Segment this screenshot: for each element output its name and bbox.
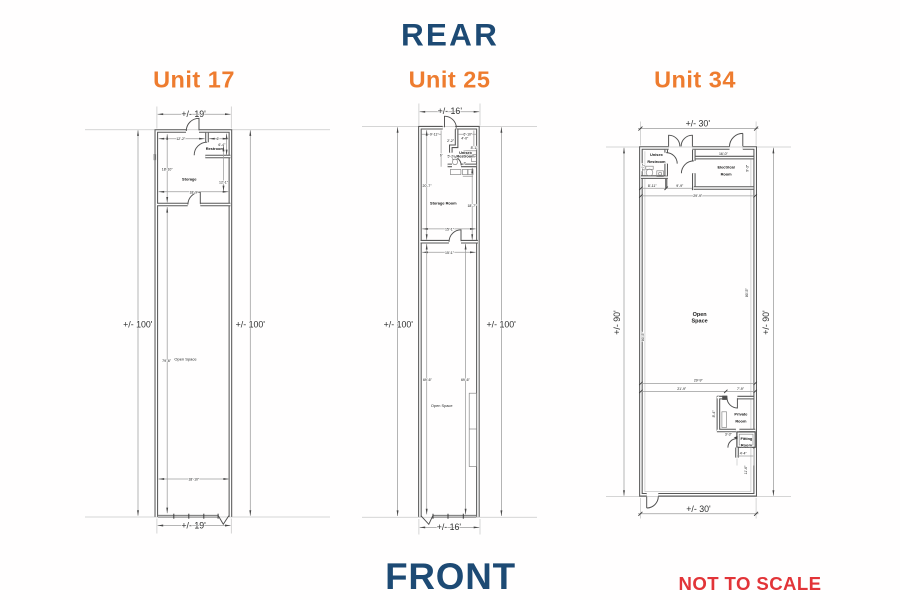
svg-text:Storage Room: Storage Room — [430, 201, 457, 206]
svg-text:Room: Room — [721, 171, 733, 176]
svg-text:5'-1": 5'-1" — [641, 163, 645, 171]
svg-text:+/- 30': +/- 30' — [686, 504, 711, 514]
svg-text:11'-6": 11'-6" — [744, 465, 748, 474]
svg-text:5'-2": 5'-2" — [448, 154, 456, 158]
svg-text:69'-6": 69'-6" — [461, 378, 471, 382]
svg-text:3'-3": 3'-3" — [725, 432, 733, 436]
svg-text:Private: Private — [734, 412, 748, 417]
svg-text:Open Space: Open Space — [174, 357, 197, 362]
svg-text:Electrical: Electrical — [717, 165, 734, 170]
svg-text:+/- 30': +/- 30' — [686, 119, 711, 129]
svg-text:Restroom: Restroom — [647, 159, 666, 164]
svg-text:+/- 100': +/- 100' — [236, 319, 266, 329]
svg-text:+/- 100': +/- 100' — [123, 319, 153, 329]
svg-text:+/- 90': +/- 90' — [612, 310, 622, 335]
svg-text:Unisex: Unisex — [650, 152, 664, 157]
svg-text:REAR: REAR — [401, 17, 499, 53]
svg-text:Space: Space — [691, 318, 707, 324]
svg-text:4'-4": 4'-4" — [740, 452, 748, 456]
svg-text:Restroom: Restroom — [206, 146, 225, 151]
svg-text:20'-7": 20'-7" — [423, 184, 433, 188]
svg-text:Open: Open — [693, 312, 708, 318]
svg-text:69'-6": 69'-6" — [423, 378, 433, 382]
svg-text:+/- 19': +/- 19' — [181, 520, 206, 530]
svg-text:9'-11": 9'-11" — [430, 133, 439, 137]
svg-text:FRONT: FRONT — [385, 556, 516, 597]
svg-text:+/- 16': +/- 16' — [438, 106, 463, 116]
svg-text:Restroom: Restroom — [456, 154, 475, 159]
svg-text:79'-6": 79'-6" — [162, 359, 172, 363]
svg-text:9'-9": 9'-9" — [676, 184, 684, 188]
svg-text:7': 7' — [463, 162, 466, 166]
svg-text:21'-9": 21'-9" — [677, 387, 687, 391]
svg-text:15'-1": 15'-1" — [445, 227, 455, 231]
svg-text:12'-1": 12'-1" — [219, 180, 229, 184]
svg-text:18'-7": 18'-7" — [467, 204, 477, 208]
svg-text:NOT TO SCALE: NOT TO SCALE — [679, 573, 822, 594]
svg-text:8'-4": 8'-4" — [712, 410, 716, 418]
svg-text:Unit 17: Unit 17 — [153, 67, 235, 93]
svg-text:16'-0": 16'-0" — [719, 152, 729, 156]
svg-text:Storage: Storage — [182, 176, 197, 181]
svg-text:2'-2": 2'-2" — [447, 139, 455, 143]
svg-text:6': 6' — [216, 137, 219, 141]
svg-text:+/- 90': +/- 90' — [761, 310, 771, 335]
svg-text:80'-5": 80'-5" — [641, 331, 645, 341]
svg-text:Unit 25: Unit 25 — [409, 67, 491, 93]
svg-text:+/- 100': +/- 100' — [384, 319, 414, 329]
svg-text:Unit 34: Unit 34 — [654, 67, 736, 93]
svg-text:18'-10": 18'-10" — [188, 478, 200, 482]
svg-text:12'-2": 12'-2" — [176, 137, 186, 141]
svg-text:Room: Room — [741, 443, 753, 448]
svg-text:15'-1": 15'-1" — [445, 251, 455, 255]
svg-text:18'-10": 18'-10" — [162, 168, 174, 172]
svg-text:Room: Room — [735, 418, 747, 423]
svg-text:+/- 19': +/- 19' — [181, 109, 206, 119]
svg-text:7'-9": 7'-9" — [737, 387, 745, 391]
svg-text:Fitting: Fitting — [740, 436, 753, 441]
svg-text:+/- 16': +/- 16' — [437, 522, 462, 532]
svg-text:29'-9": 29'-9" — [694, 379, 704, 383]
svg-text:4'-0": 4'-0" — [461, 136, 469, 140]
svg-text:+/- 100': +/- 100' — [487, 319, 517, 329]
svg-text:18'-9": 18'-9" — [189, 190, 199, 194]
svg-text:9'-3": 9'-3" — [746, 164, 750, 172]
svg-text:29'-9": 29'-9" — [693, 194, 703, 198]
svg-text:80'-5": 80'-5" — [745, 287, 749, 297]
svg-text:Open Space: Open Space — [431, 403, 453, 408]
svg-text:8'-11": 8'-11" — [648, 184, 657, 188]
svg-text:6': 6' — [440, 154, 443, 158]
